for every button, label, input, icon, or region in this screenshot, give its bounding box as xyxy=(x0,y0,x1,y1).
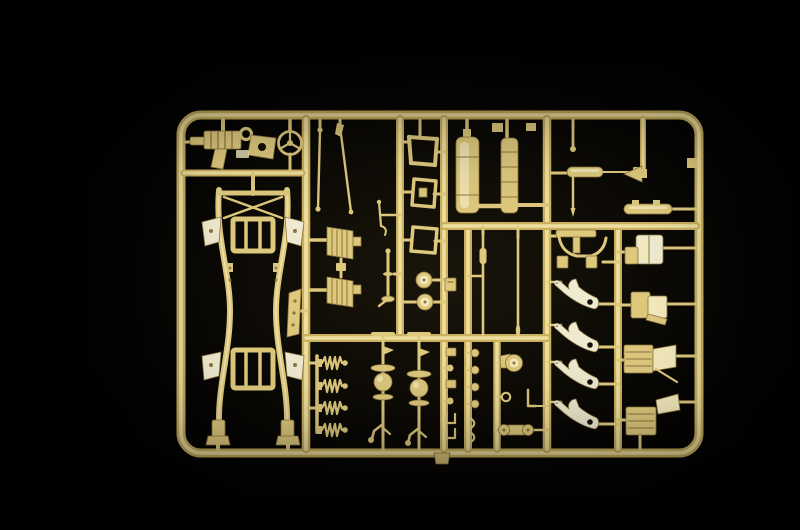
fuel-tank-panel-1 xyxy=(456,120,479,213)
sprue-photo xyxy=(40,16,800,530)
bottom-tab xyxy=(434,453,450,464)
coil-spring-rack xyxy=(308,356,348,436)
fuel-tank-panel-2 xyxy=(479,120,548,213)
seat-4 xyxy=(618,394,696,450)
spring-hanger xyxy=(549,230,619,268)
horn xyxy=(498,354,523,372)
engine-gearbox xyxy=(186,120,276,169)
bracket-frame-3 xyxy=(402,227,445,253)
sprue-svg xyxy=(40,16,800,530)
radiator-panel-2 xyxy=(310,259,361,307)
pin-part-1 xyxy=(570,120,576,152)
sprue xyxy=(181,115,699,464)
seat-1 xyxy=(618,235,696,264)
bracket-frame-1 xyxy=(402,120,445,167)
pulley-2 xyxy=(402,294,445,310)
bracket-frame-2 xyxy=(402,179,445,207)
radiator-panel-1 xyxy=(310,227,361,259)
pin-part-2 xyxy=(571,177,576,217)
wishbone-3 xyxy=(548,359,618,389)
torsion-bar xyxy=(551,167,639,177)
roller-drum xyxy=(495,425,548,436)
sprue-runners xyxy=(184,119,696,449)
spear-rod xyxy=(335,120,353,214)
rear-axle-assembly xyxy=(405,334,431,450)
seat-3 xyxy=(618,345,696,382)
tie-rod xyxy=(315,120,322,212)
front-axle-assembly xyxy=(368,334,395,450)
exhaust-pipe-2 xyxy=(516,227,521,338)
wishbone-2 xyxy=(548,322,618,352)
clip-bracket xyxy=(445,278,456,291)
wishbone-1 xyxy=(548,279,618,309)
top-tab-1 xyxy=(492,123,503,132)
steering-wheel xyxy=(279,120,302,172)
wishbone-4 xyxy=(548,399,618,429)
muffler xyxy=(624,200,696,214)
seat-2 xyxy=(618,292,696,325)
top-tab-2 xyxy=(526,123,536,131)
edge-tab xyxy=(687,158,697,168)
